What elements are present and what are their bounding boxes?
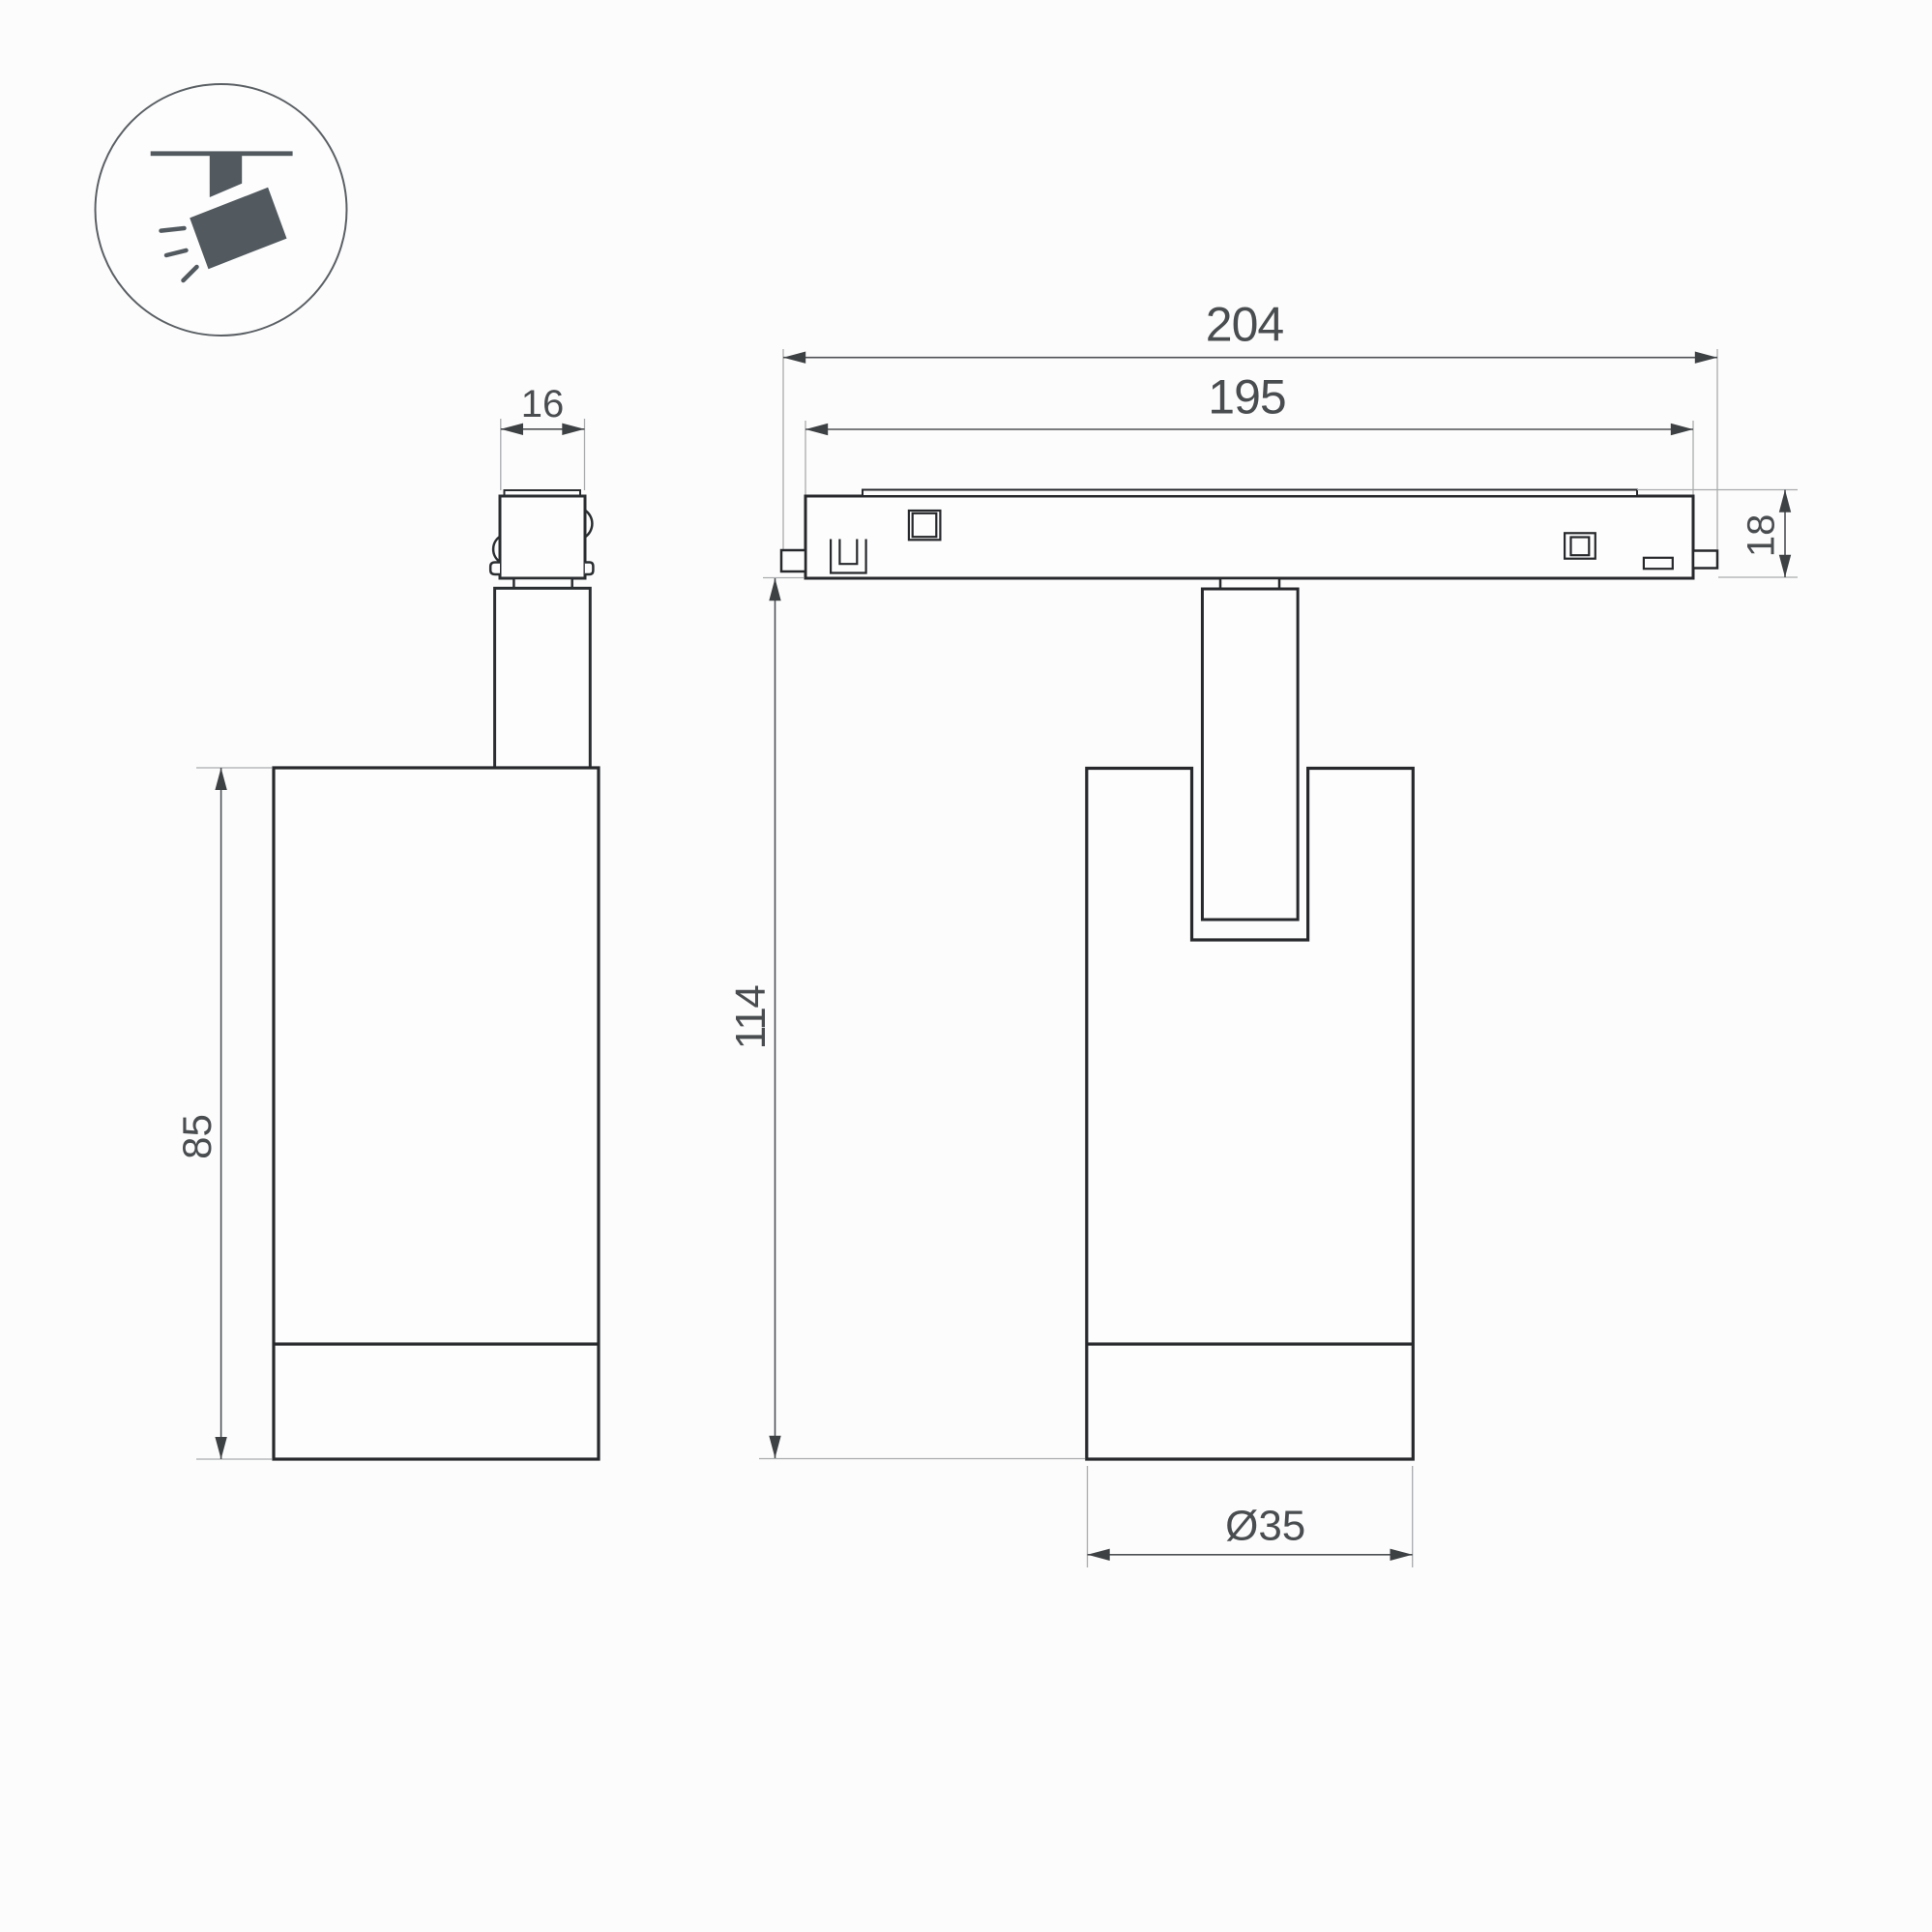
svg-text:195: 195	[1208, 370, 1285, 424]
svg-text:Ø35: Ø35	[1225, 1502, 1305, 1549]
svg-text:204: 204	[1206, 298, 1284, 352]
svg-text:85: 85	[174, 1114, 220, 1159]
svg-text:18: 18	[1741, 514, 1783, 558]
svg-text:114: 114	[727, 985, 775, 1050]
svg-text:16: 16	[521, 383, 565, 425]
